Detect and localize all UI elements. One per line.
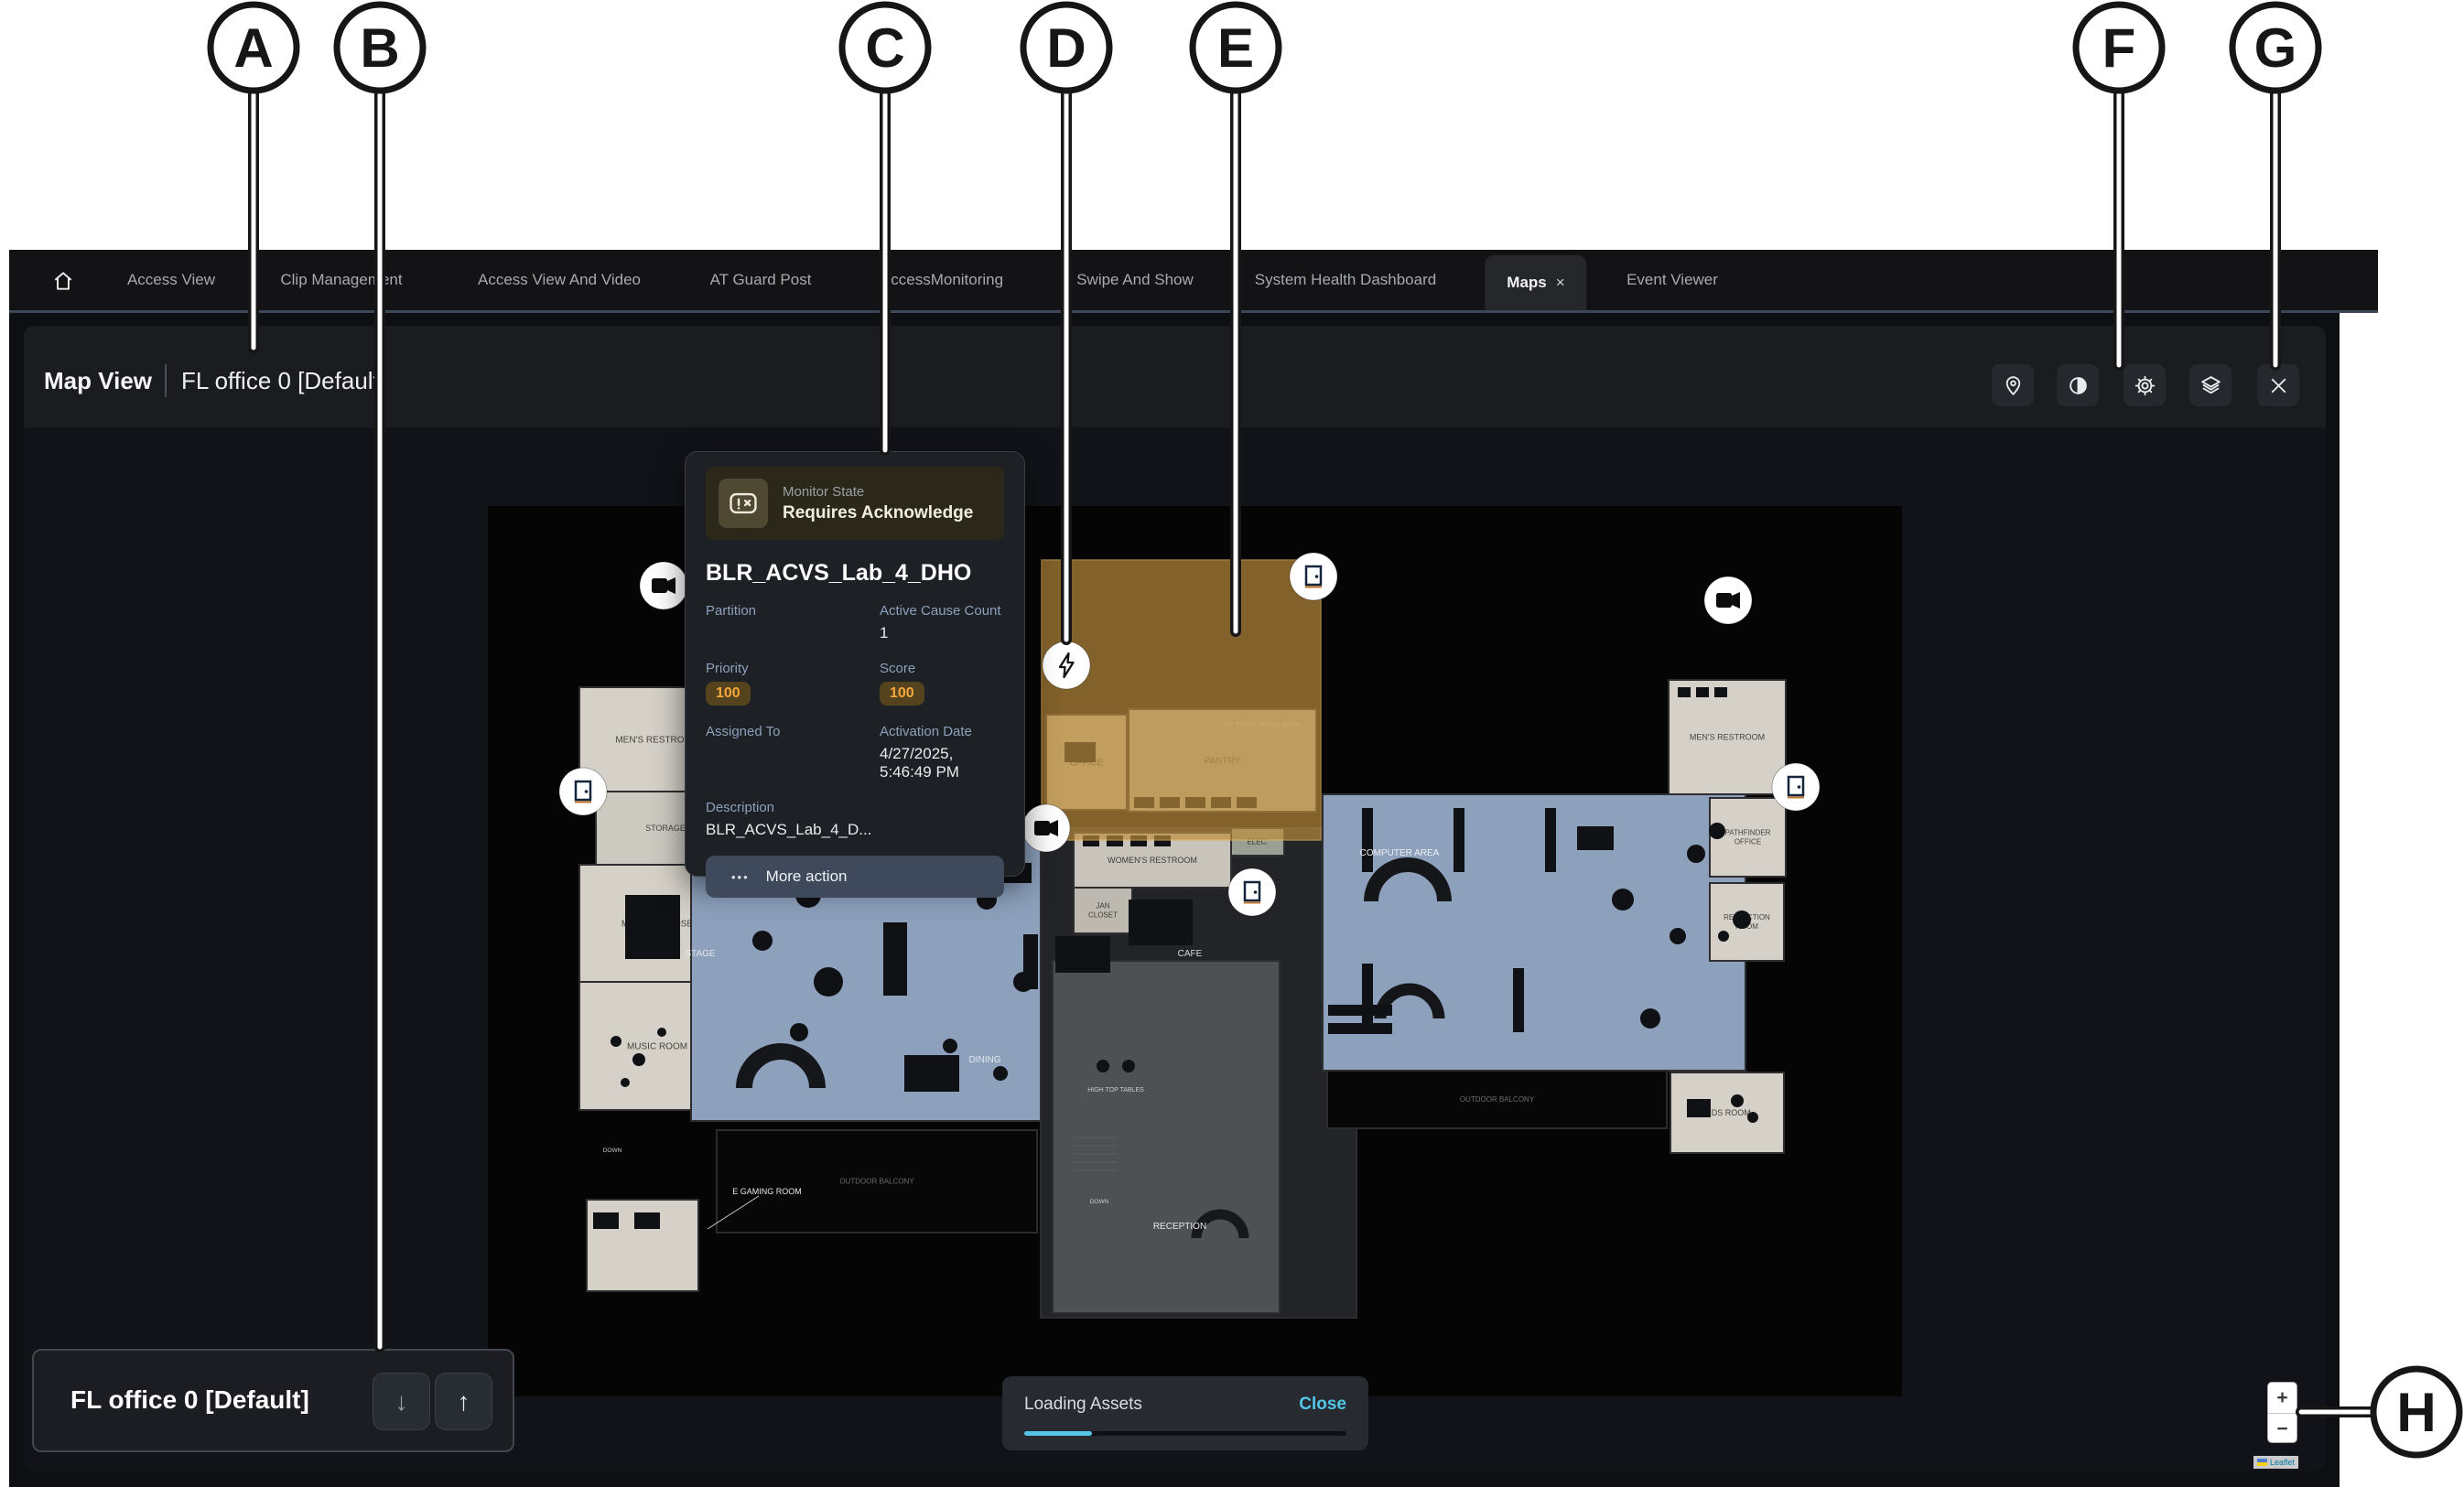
- callout-letter-C: C: [865, 17, 904, 79]
- contrast-button[interactable]: [2057, 364, 2099, 406]
- settings-gear-button[interactable]: [2124, 364, 2166, 406]
- svg-text:OUTDOOR BALCONY: OUTDOOR BALCONY: [1460, 1095, 1535, 1104]
- flag-icon: [2257, 1459, 2267, 1466]
- callout-letter-D: D: [1046, 17, 1086, 79]
- callout-circle-B: [337, 5, 423, 91]
- event-title: BLR_ACVS_Lab_4_DHO: [706, 560, 1004, 587]
- map-marker-lightning-icon[interactable]: [1043, 641, 1090, 689]
- contrast-icon: [2067, 374, 2090, 397]
- monitor-state-icon: [719, 479, 768, 528]
- map-title: FL office 0 [Default]: [181, 367, 386, 395]
- monitor-state-value: Requires Acknowledge: [783, 503, 973, 523]
- close-button[interactable]: [2257, 364, 2299, 406]
- callout-letter-G: G: [2254, 17, 2297, 79]
- card-field-assigned-to: Assigned To: [706, 724, 880, 781]
- loading-progress-fill: [1024, 1431, 1092, 1436]
- tab-clip-management[interactable]: Clip Management: [280, 250, 402, 310]
- layers-button[interactable]: [2189, 364, 2232, 406]
- map-label-cafe: CAFE: [1178, 949, 1203, 959]
- callout-circle-A: [211, 5, 297, 91]
- arrow-up-icon: ↑: [458, 1387, 470, 1417]
- tab-access-view-and-video[interactable]: Access View And Video: [478, 250, 641, 310]
- callout-circle-G: [2232, 5, 2318, 91]
- svg-text:STORAGE: STORAGE: [645, 824, 686, 833]
- loading-toast: Loading Assets Close: [1002, 1376, 1368, 1450]
- loading-progress-track: [1024, 1431, 1346, 1436]
- annotated-screenshot: Access ViewClip ManagementAccess View An…: [0, 0, 2464, 1487]
- card-field-activation-date: Activation Date4/27/2025, 5:46:49 PM: [880, 724, 1004, 781]
- callout-circle-F: [2076, 5, 2162, 91]
- svg-text:WOMEN'S RESTROOM: WOMEN'S RESTROOM: [1108, 856, 1197, 865]
- map-marker-camera-icon[interactable]: [1022, 804, 1070, 852]
- location-pin-button[interactable]: [1992, 364, 2034, 406]
- map-label-down: DOWN: [1090, 1199, 1109, 1205]
- card-field-score: Score100: [880, 661, 1004, 706]
- callout-letter-A: A: [233, 17, 273, 79]
- svg-text:JAN: JAN: [1096, 902, 1109, 911]
- card-field-priority: Priority100: [706, 661, 880, 706]
- tab-bar: Access ViewClip ManagementAccess View An…: [9, 250, 2378, 313]
- map-label-dining: DINING: [969, 1055, 1001, 1065]
- svg-text:OUTDOOR BALCONY: OUTDOOR BALCONY: [839, 1178, 914, 1186]
- settings-gear-icon: [2134, 374, 2156, 397]
- map-label-stage: STAGE: [685, 949, 715, 959]
- home-icon[interactable]: [51, 269, 75, 297]
- floor-selector-panel: FL office 0 [Default] ↓ ↑: [32, 1349, 514, 1452]
- map-marker-door-icon[interactable]: [559, 768, 607, 815]
- close-icon: [2267, 374, 2290, 397]
- more-action-button[interactable]: ••• More action: [706, 856, 1004, 898]
- tab-swipe-and-show[interactable]: Swipe And Show: [1076, 250, 1194, 310]
- ellipsis-icon: •••: [731, 870, 750, 884]
- tab-system-health-dashboard[interactable]: System Health Dashboard: [1255, 250, 1436, 310]
- floor-down-button[interactable]: ↓: [373, 1373, 430, 1430]
- arrow-down-icon: ↓: [395, 1387, 408, 1417]
- card-field-description: DescriptionBLR_ACVS_Lab_4_D...: [706, 800, 1004, 839]
- svg-text:MEN'S RESTROOM: MEN'S RESTROOM: [1690, 733, 1765, 742]
- callout-letter-H: H: [2396, 1382, 2436, 1443]
- tab-event-viewer[interactable]: Event Viewer: [1626, 250, 1718, 310]
- svg-text:MUSIC ROOM: MUSIC ROOM: [627, 1041, 687, 1051]
- leaflet-attribution: Leaflet: [2253, 1456, 2298, 1469]
- location-pin-icon: [2002, 374, 2025, 397]
- map-zoom-control: + −: [2267, 1382, 2297, 1443]
- floor-up-button[interactable]: ↑: [435, 1373, 492, 1430]
- callout-letter-E: E: [1217, 17, 1254, 79]
- svg-text:CLOSET: CLOSET: [1088, 911, 1118, 920]
- svg-text:PATHFINDER: PATHFINDER: [1725, 829, 1771, 837]
- map-label-e-gaming-room: E GAMING ROOM: [732, 1187, 802, 1196]
- callout-letter-F: F: [2102, 17, 2136, 79]
- room-jan-closet: JANCLOSET: [1074, 888, 1132, 933]
- room-outdoor-balcony: OUTDOOR BALCONY: [717, 1130, 1037, 1233]
- monitor-state-banner: Monitor State Requires Acknowledge: [706, 467, 1004, 540]
- tab-maps[interactable]: Maps×: [1485, 255, 1586, 310]
- tab-accessmonitoring[interactable]: AccessMonitoring: [881, 250, 1003, 310]
- map-label-high-top-tables: HIGH TOP TABLES: [1087, 1087, 1144, 1094]
- tab-at-guard-post[interactable]: AT Guard Post: [710, 250, 812, 310]
- room-outdoor-balcony: OUTDOOR BALCONY: [1327, 1071, 1667, 1128]
- loading-label: Loading Assets: [1024, 1395, 1142, 1415]
- leaflet-link[interactable]: Leaflet: [2270, 1458, 2295, 1467]
- zoom-in-button[interactable]: +: [2268, 1383, 2296, 1414]
- monitor-state-label: Monitor State: [783, 484, 973, 500]
- map-marker-door-icon[interactable]: [1228, 868, 1276, 916]
- toast-close-button[interactable]: Close: [1299, 1395, 1346, 1415]
- tab-access-view[interactable]: Access View: [127, 250, 215, 310]
- page-title: Map View: [44, 367, 152, 395]
- zoom-out-button[interactable]: −: [2268, 1414, 2296, 1443]
- title-divider: [165, 364, 167, 397]
- event-fields: PartitionActive Cause Count1Priority100S…: [706, 603, 1004, 839]
- map-marker-door-icon[interactable]: [1290, 553, 1337, 600]
- callout-circle-D: [1023, 5, 1109, 91]
- map-label-down: DOWN: [603, 1148, 622, 1154]
- highlighted-zone[interactable]: [1042, 560, 1321, 840]
- map-label-computer-area: COMPUTER AREA: [1360, 848, 1440, 858]
- map-marker-camera-icon[interactable]: [1704, 576, 1752, 624]
- svg-text:OFFICE: OFFICE: [1735, 838, 1761, 846]
- map-label-reception: RECEPTION: [1153, 1222, 1206, 1232]
- map-marker-door-icon[interactable]: [1772, 763, 1820, 811]
- tab-close-icon[interactable]: ×: [1556, 274, 1565, 291]
- card-field-partition: Partition: [706, 603, 880, 642]
- callout-letter-B: B: [360, 17, 399, 79]
- callout-circle-C: [842, 5, 928, 91]
- callout-circle-E: [1193, 5, 1279, 91]
- floor-selector-label: FL office 0 [Default]: [70, 1385, 309, 1415]
- card-field-active-cause-count: Active Cause Count1: [880, 603, 1004, 642]
- layers-icon: [2199, 374, 2222, 397]
- event-detail-card: Monitor State Requires Acknowledge BLR_A…: [685, 451, 1025, 877]
- map-marker-camera-icon[interactable]: [640, 562, 687, 609]
- callout-circle-H: [2373, 1369, 2459, 1455]
